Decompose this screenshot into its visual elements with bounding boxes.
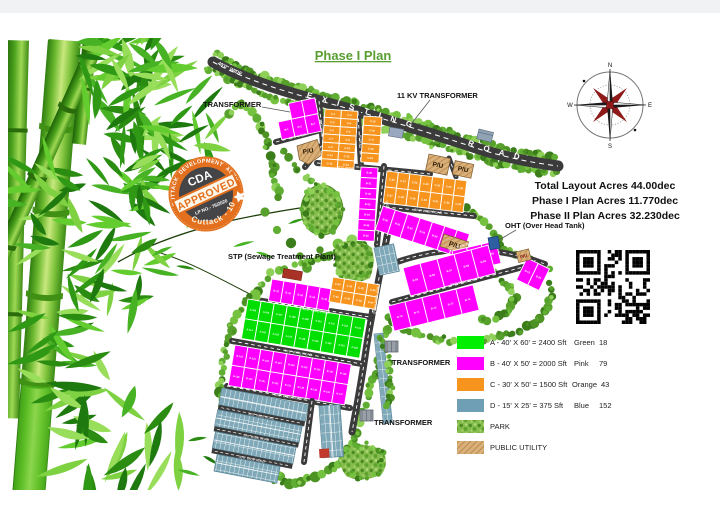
svg-text:43: 43 — [601, 380, 609, 389]
svg-text:Pink: Pink — [574, 359, 589, 368]
svg-text:TRANSFORMER: TRANSFORMER — [392, 358, 451, 367]
svg-text:A - 40' X 60' = 2400 Sft: A - 40' X 60' = 2400 Sft — [490, 338, 567, 347]
svg-text:Phase I Plan Acres 11.770dec: Phase I Plan Acres 11.770dec — [532, 195, 678, 207]
svg-text:C - 30' X 50' = 1500 Sft: C - 30' X 50' = 1500 Sft — [490, 380, 568, 389]
svg-text:B - 40' X 50' = 2000 Sft: B - 40' X 50' = 2000 Sft — [490, 359, 568, 368]
svg-text:C-31: C-31 — [432, 199, 439, 204]
svg-text:C-29: C-29 — [410, 196, 417, 201]
svg-text:C-15: C-15 — [370, 119, 376, 123]
svg-text:Orange: Orange — [572, 380, 597, 389]
svg-text:C-10: C-10 — [344, 146, 350, 150]
svg-text:S: S — [608, 144, 612, 150]
svg-text:TRANSFORMER: TRANSFORMER — [374, 418, 433, 427]
svg-text:ROAD: ROAD — [358, 135, 363, 146]
svg-text:C-23: C-23 — [423, 182, 430, 187]
svg-text:B-30: B-30 — [366, 170, 372, 174]
svg-text:Phase I Plan: Phase I Plan — [315, 48, 392, 63]
svg-text:B-31: B-31 — [366, 181, 372, 185]
svg-text:18: 18 — [599, 338, 607, 347]
svg-text:C-25: C-25 — [446, 184, 453, 189]
svg-text:E: E — [648, 103, 652, 109]
svg-text:C-22: C-22 — [412, 180, 419, 185]
svg-text:C-17: C-17 — [368, 137, 374, 141]
svg-text:C-28: C-28 — [398, 195, 405, 200]
svg-text:79: 79 — [599, 359, 607, 368]
svg-text:B-35: B-35 — [364, 223, 370, 227]
svg-text:B-32: B-32 — [365, 191, 371, 195]
svg-text:152: 152 — [599, 401, 612, 410]
svg-text:D - 15' X 25' = 375 Sft: D - 15' X 25' = 375 Sft — [490, 401, 564, 410]
svg-text:Total Layout Acres 44.00dec: Total Layout Acres 44.00dec — [535, 180, 676, 192]
svg-text:C-21: C-21 — [400, 179, 407, 184]
svg-text:C-20: C-20 — [389, 177, 396, 182]
svg-text:C-27: C-27 — [387, 193, 394, 198]
svg-text:Green: Green — [574, 338, 595, 347]
svg-text:C-18: C-18 — [368, 147, 374, 151]
svg-text:Blue: Blue — [574, 401, 589, 410]
svg-text:STP (Sewage Treatment Plant): STP (Sewage Treatment Plant) — [228, 252, 336, 261]
svg-text:B-33: B-33 — [365, 202, 371, 206]
svg-text:PUBLIC UTILITY: PUBLIC UTILITY — [490, 443, 547, 452]
svg-text:B-34: B-34 — [364, 212, 370, 216]
svg-text:W: W — [567, 103, 573, 109]
svg-text:C-13: C-13 — [326, 161, 332, 165]
svg-text:C-26: C-26 — [457, 186, 464, 191]
svg-text:C-16: C-16 — [369, 128, 375, 132]
svg-text:C-33: C-33 — [455, 202, 462, 207]
svg-text:TRANSFORMER: TRANSFORMER — [203, 100, 262, 109]
svg-text:C-12: C-12 — [344, 154, 350, 158]
svg-text:11 KV TRANSFORMER: 11 KV TRANSFORMER — [397, 91, 478, 100]
svg-text:Phase II Plan Acres 32.230dec: Phase II Plan Acres 32.230dec — [530, 210, 680, 222]
svg-text:N: N — [608, 63, 612, 69]
svg-text:C-24: C-24 — [434, 183, 441, 188]
svg-text:C-19: C-19 — [367, 156, 373, 160]
svg-text:C-30: C-30 — [421, 197, 428, 202]
svg-text:B-36: B-36 — [363, 233, 369, 237]
svg-text:PARK: PARK — [490, 422, 510, 431]
svg-text:OHT (Over Head Tank): OHT (Over Head Tank) — [505, 221, 585, 230]
svg-text:C-32: C-32 — [444, 200, 451, 205]
svg-text:C-11: C-11 — [327, 153, 333, 157]
